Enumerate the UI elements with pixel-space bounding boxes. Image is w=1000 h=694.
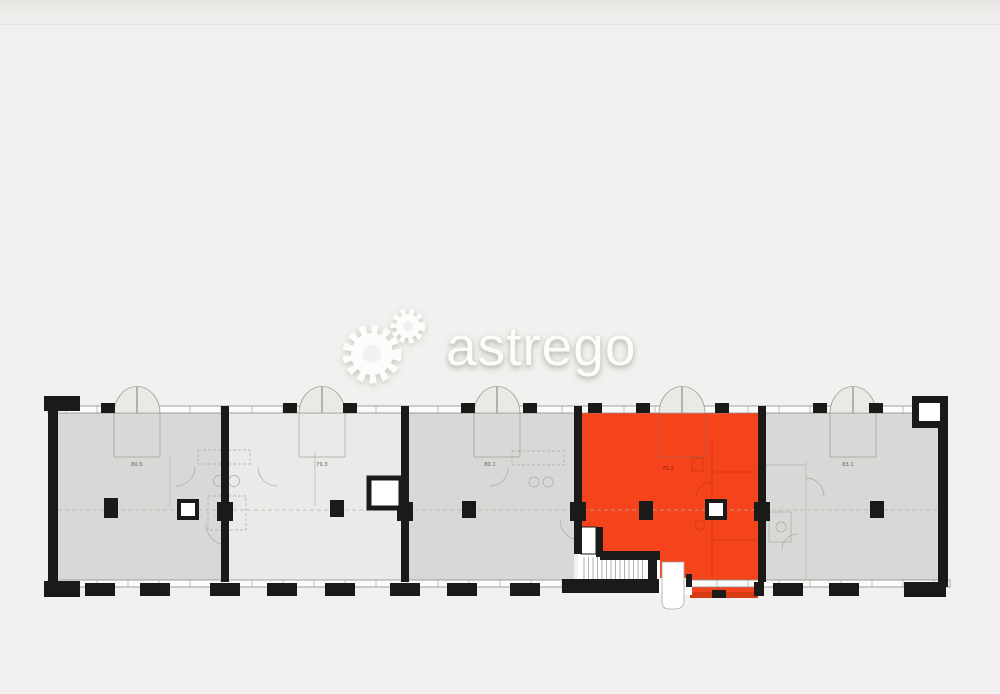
unit-4-bay-strip bbox=[690, 592, 758, 598]
top-wall-piers bbox=[101, 403, 883, 413]
plan-linework bbox=[0, 0, 1000, 694]
entrance-double-door-icons bbox=[114, 387, 876, 414]
unit-3[interactable] bbox=[409, 413, 574, 580]
unit-2[interactable] bbox=[229, 413, 401, 580]
unit-1[interactable] bbox=[58, 413, 221, 580]
floor-plan: 80.5 79.3 80.1 70.1 83.1 bbox=[0, 0, 1000, 694]
unit-5[interactable] bbox=[766, 413, 938, 580]
unit-4-selected[interactable] bbox=[582, 413, 758, 580]
page-background: astrego bbox=[0, 0, 1000, 694]
unit-4-bay[interactable] bbox=[690, 580, 758, 598]
